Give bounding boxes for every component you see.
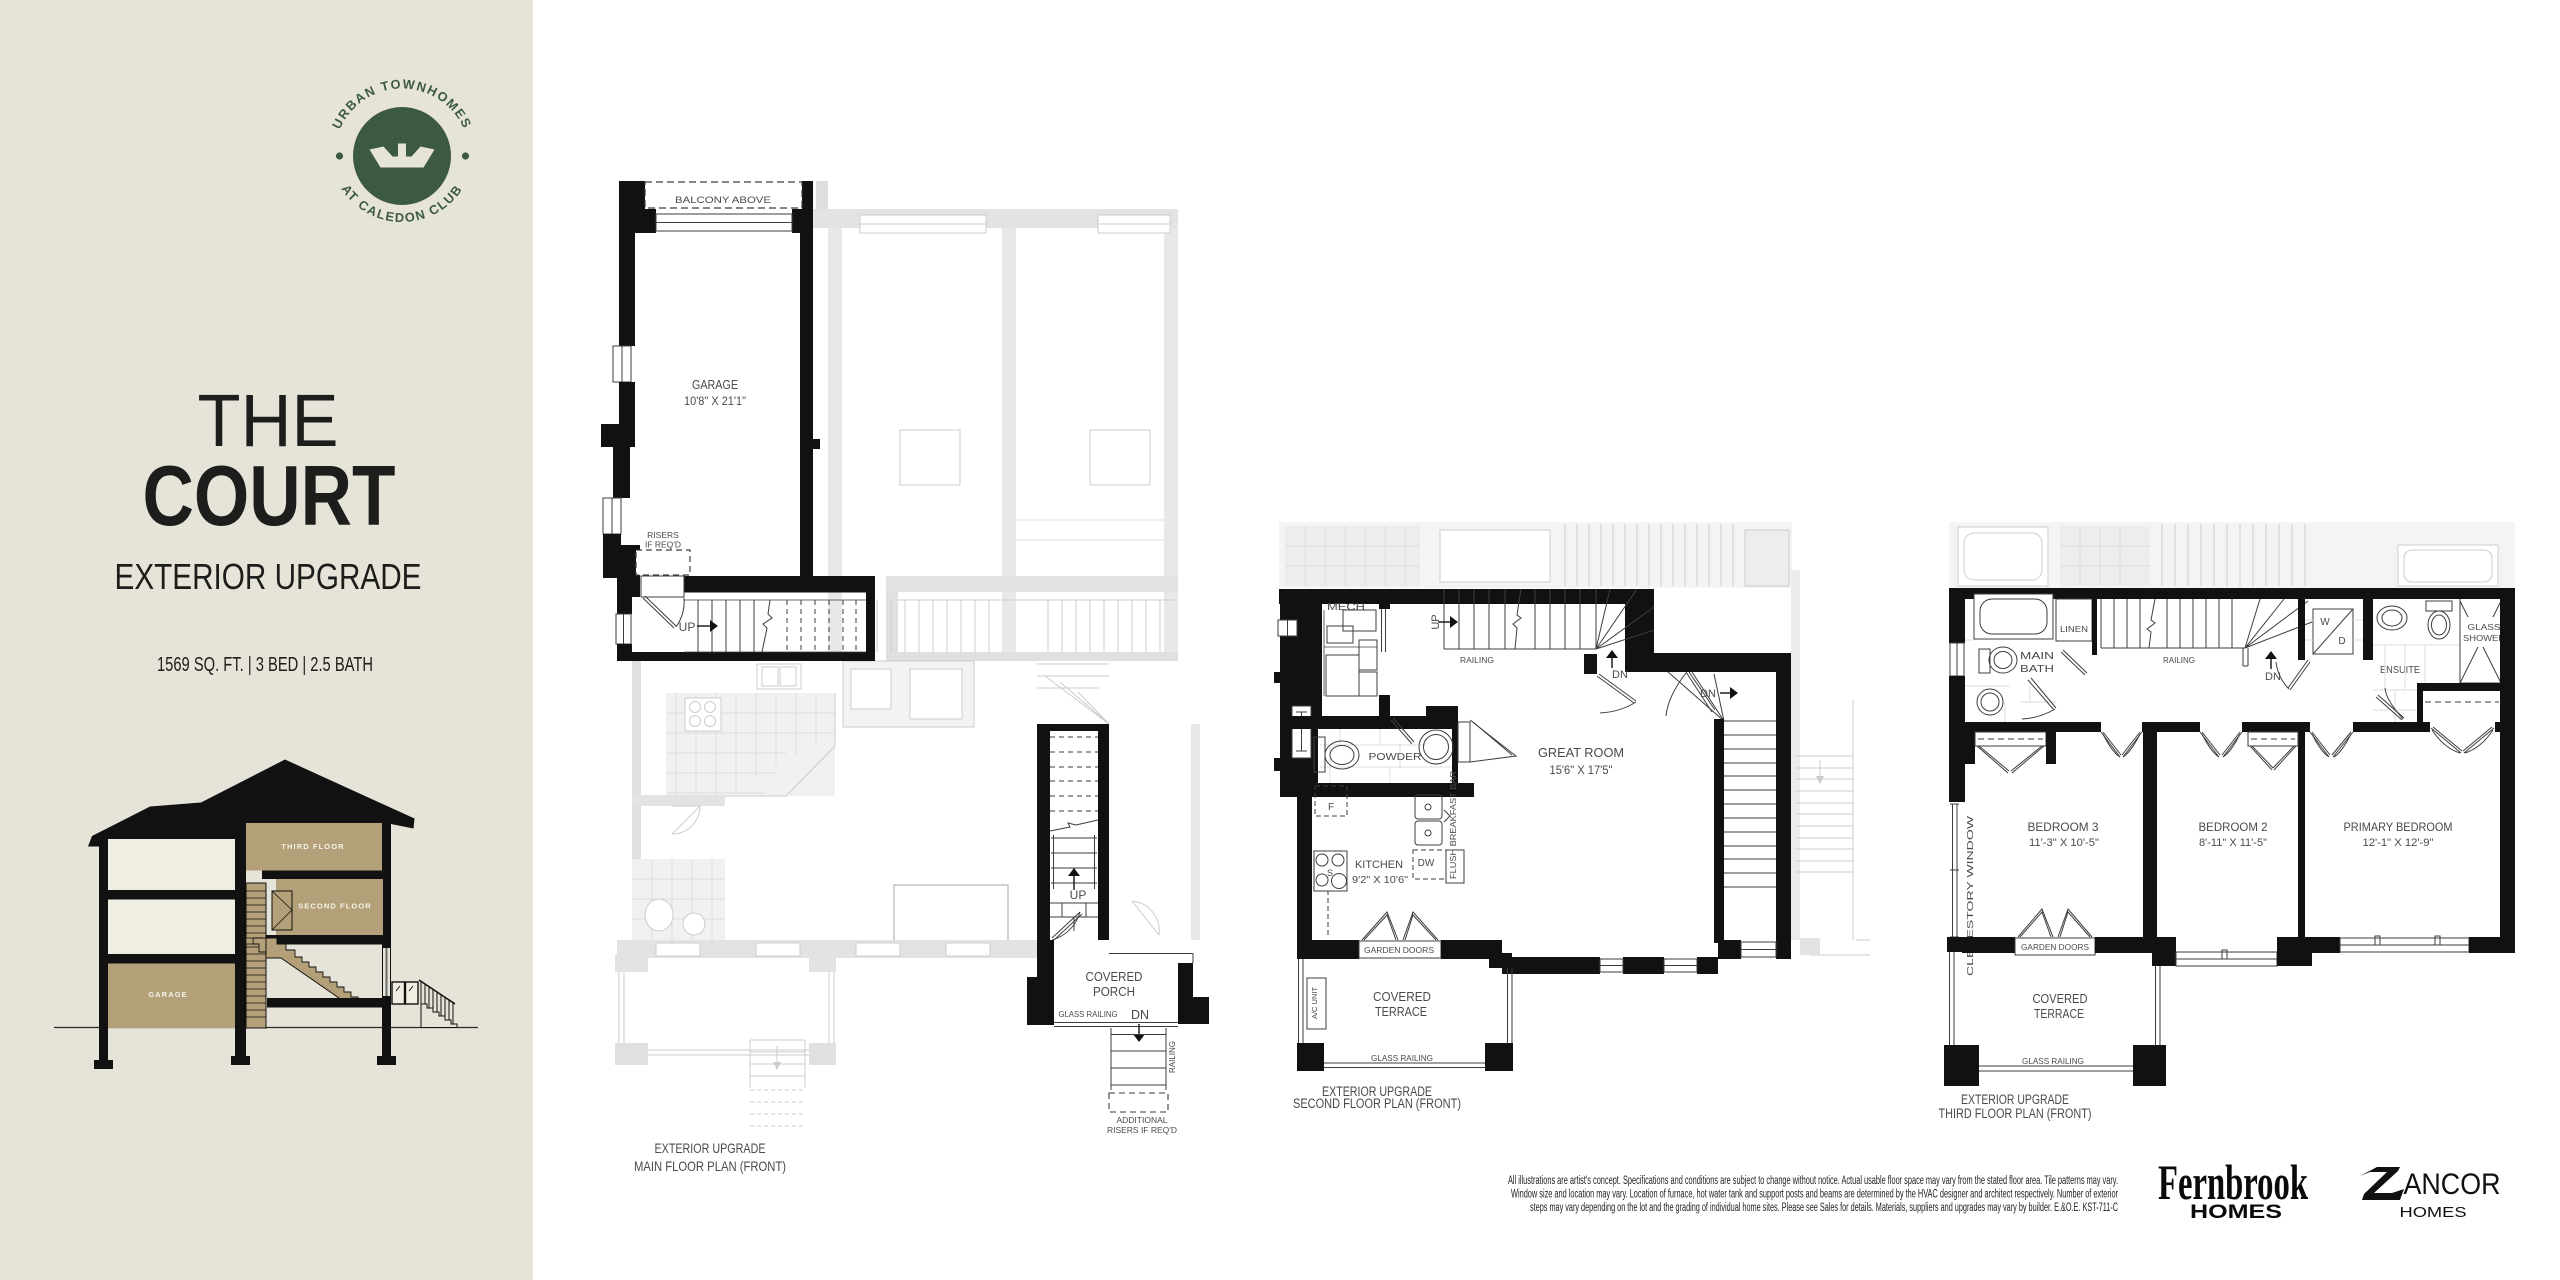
svg-text:PORCH: PORCH — [1093, 985, 1135, 999]
svg-text:COVERED: COVERED — [1373, 990, 1431, 1004]
svg-text:COVERED: COVERED — [1086, 970, 1143, 984]
svg-text:LINEN: LINEN — [2060, 624, 2088, 634]
svg-text:GARAGE: GARAGE — [148, 990, 188, 999]
svg-text:RAILING: RAILING — [2163, 656, 2195, 665]
svg-text:GLASS RAILING: GLASS RAILING — [2022, 1056, 2084, 1066]
svg-text:COURT: COURT — [143, 449, 396, 544]
svg-text:ENSUITE: ENSUITE — [2380, 664, 2420, 676]
svg-text:BALCONY ABOVE: BALCONY ABOVE — [675, 195, 771, 206]
svg-text:EXTERIOR UPGRADE: EXTERIOR UPGRADE — [115, 556, 422, 597]
svg-text:F: F — [1328, 802, 1334, 813]
svg-text:RAILING: RAILING — [1168, 1041, 1177, 1073]
svg-text:Window size and location may v: Window size and location may vary. Locat… — [1511, 1189, 2118, 1201]
svg-text:GARDEN DOORS: GARDEN DOORS — [2021, 942, 2089, 952]
svg-text:10'8" X 21'1": 10'8" X 21'1" — [684, 394, 746, 408]
svg-text:8'-11" X 11'-5": 8'-11" X 11'-5" — [2199, 837, 2267, 849]
svg-text:MAIN FLOOR PLAN (FRONT): MAIN FLOOR PLAN (FRONT) — [634, 1158, 786, 1174]
svg-text:GLASS RAILING: GLASS RAILING — [1059, 1009, 1118, 1019]
svg-text:COVERED: COVERED — [2033, 992, 2088, 1006]
svg-text:SECOND FLOOR PLAN (FRONT): SECOND FLOOR PLAN (FRONT) — [1293, 1096, 1461, 1111]
svg-text:11'-3" X 10'-5": 11'-3" X 10'-5" — [2029, 837, 2099, 849]
svg-text:EXTERIOR UPGRADE: EXTERIOR UPGRADE — [1961, 1092, 2069, 1107]
svg-text:W: W — [2320, 617, 2330, 628]
svg-text:ANCOR: ANCOR — [2404, 1168, 2501, 1201]
svg-text:BATH: BATH — [2020, 663, 2054, 675]
svg-text:GARDEN DOORS: GARDEN DOORS — [1364, 945, 1434, 955]
svg-text:9'2" X 10'6": 9'2" X 10'6" — [1352, 874, 1408, 886]
svg-text:UP: UP — [679, 620, 696, 634]
svg-text:DN: DN — [1131, 1008, 1149, 1022]
svg-text:GREAT ROOM: GREAT ROOM — [1538, 745, 1624, 760]
svg-text:THIRD FLOOR: THIRD FLOOR — [281, 842, 344, 851]
svg-text:HOMES: HOMES — [2190, 1202, 2282, 1223]
svg-text:DN: DN — [1700, 688, 1716, 700]
svg-text:SECOND FLOOR: SECOND FLOOR — [298, 902, 372, 911]
svg-text:RISERS: RISERS — [647, 530, 679, 540]
svg-text:A/C UNIT: A/C UNIT — [1310, 987, 1319, 1020]
svg-text:TERRACE: TERRACE — [1375, 1005, 1427, 1019]
svg-text:ADDITIONAL: ADDITIONAL — [1116, 1115, 1167, 1125]
svg-text:DN: DN — [1612, 669, 1628, 681]
svg-text:FLUSH BREAKFAST BAR: FLUSH BREAKFAST BAR — [1449, 771, 1458, 879]
svg-text:1569 SQ. FT. | 3 BED | 2.5: 1569 SQ. FT. | 3 BED | 2.5 BATH — [157, 654, 373, 676]
svg-text:HOMES: HOMES — [2400, 1205, 2467, 1221]
svg-text:RISERS IF REQ'D: RISERS IF REQ'D — [1107, 1125, 1177, 1135]
svg-text:steps may vary depending on th: steps may vary depending on the lot and … — [1530, 1202, 2118, 1214]
svg-text:GLASS: GLASS — [2468, 623, 2501, 632]
svg-text:TERRACE: TERRACE — [2034, 1007, 2084, 1021]
svg-text:GARAGE: GARAGE — [692, 377, 738, 392]
svg-text:MAIN: MAIN — [2020, 650, 2054, 662]
svg-text:12'-1" X 12'-9": 12'-1" X 12'-9" — [2363, 837, 2434, 849]
svg-text:EXTERIOR UPGRADE: EXTERIOR UPGRADE — [655, 1140, 766, 1156]
svg-text:GLASS RAILING: GLASS RAILING — [1371, 1053, 1433, 1063]
svg-text:MECH: MECH — [1327, 601, 1365, 613]
svg-text:UP: UP — [1070, 888, 1087, 902]
svg-text:PRIMARY BEDROOM: PRIMARY BEDROOM — [2344, 820, 2453, 834]
svg-text:RAILING: RAILING — [1460, 656, 1494, 665]
svg-text:POWDER: POWDER — [1369, 751, 1422, 763]
svg-text:SHOWER: SHOWER — [2463, 634, 2505, 643]
svg-text:BEDROOM 2: BEDROOM 2 — [2199, 820, 2268, 834]
svg-text:S: S — [1327, 868, 1333, 878]
svg-text:15'6" X 17'5": 15'6" X 17'5" — [1550, 763, 1613, 777]
svg-text:KITCHEN: KITCHEN — [1355, 859, 1403, 871]
svg-text:DW: DW — [1418, 858, 1435, 869]
svg-text:D: D — [2338, 636, 2345, 647]
svg-text:All illustrations are artist's: All illustrations are artist's concept. … — [1508, 1175, 2118, 1187]
svg-text:IF REQ'D: IF REQ'D — [645, 540, 681, 550]
svg-text:BEDROOM 3: BEDROOM 3 — [2028, 820, 2099, 834]
svg-text:THIRD FLOOR PLAN (FRONT): THIRD FLOOR PLAN (FRONT) — [1939, 1106, 2092, 1121]
